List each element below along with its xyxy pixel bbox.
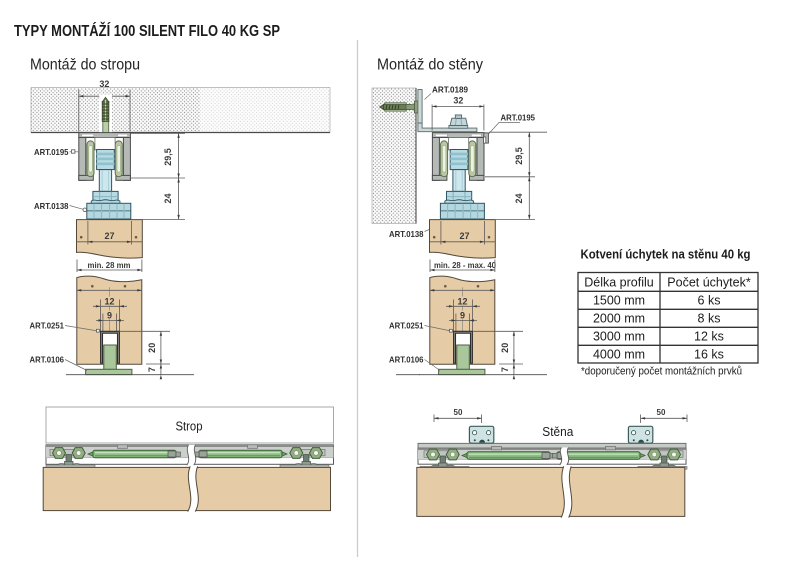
svg-text:Montáž do stěny: Montáž do stěny: [377, 57, 483, 74]
svg-text:TYPY MONTÁŽÍ 100 SILENT FILO 4: TYPY MONTÁŽÍ 100 SILENT FILO 40 KG SP: [14, 21, 280, 40]
svg-text:24: 24: [163, 193, 173, 203]
svg-text:Stěna: Stěna: [542, 425, 573, 439]
svg-text:32: 32: [99, 79, 109, 89]
svg-text:Délka profilu: Délka profilu: [584, 276, 654, 290]
svg-text:ART.0138: ART.0138: [34, 201, 69, 211]
svg-text:Montáž do stropu: Montáž do stropu: [30, 57, 140, 74]
svg-text:4000 mm: 4000 mm: [593, 348, 645, 362]
svg-text:Počet úchytek*: Počet úchytek*: [667, 276, 751, 290]
svg-text:ART.0195: ART.0195: [501, 113, 536, 123]
svg-text:6 ks: 6 ks: [698, 294, 721, 308]
svg-text:ART.0189: ART.0189: [432, 85, 468, 95]
svg-text:ART.0106: ART.0106: [30, 355, 65, 365]
svg-text:50: 50: [657, 408, 666, 417]
svg-text:50: 50: [454, 408, 463, 417]
svg-text:32: 32: [453, 95, 463, 105]
svg-text:*doporučený počet montážních p: *doporučený počet montážních prvků: [581, 366, 742, 378]
svg-text:min. 28 mm: min. 28 mm: [88, 260, 131, 270]
svg-text:Strop: Strop: [176, 420, 203, 434]
svg-text:ART.0251: ART.0251: [389, 321, 424, 331]
svg-text:29,5: 29,5: [514, 147, 524, 165]
svg-text:24: 24: [514, 193, 524, 203]
svg-text:3000 mm: 3000 mm: [593, 330, 645, 344]
svg-text:12 ks: 12 ks: [694, 330, 724, 344]
svg-text:29,5: 29,5: [163, 148, 173, 166]
svg-text:ART.0195: ART.0195: [34, 147, 69, 157]
svg-text:1500 mm: 1500 mm: [593, 294, 645, 308]
svg-text:8 ks: 8 ks: [698, 312, 721, 326]
svg-text:27: 27: [459, 231, 469, 241]
svg-text:27: 27: [104, 231, 114, 241]
svg-text:ART.0106: ART.0106: [389, 355, 424, 365]
svg-text:16 ks: 16 ks: [694, 348, 724, 362]
svg-text:ART.0138: ART.0138: [389, 229, 424, 239]
svg-text:2000 mm: 2000 mm: [593, 312, 645, 326]
svg-text:min. 28 - max. 40: min. 28 - max. 40: [434, 260, 496, 270]
svg-text:ART.0251: ART.0251: [30, 321, 65, 331]
svg-text:Kotvení úchytek na stěnu 40 kg: Kotvení úchytek na stěnu 40 kg: [581, 247, 751, 262]
